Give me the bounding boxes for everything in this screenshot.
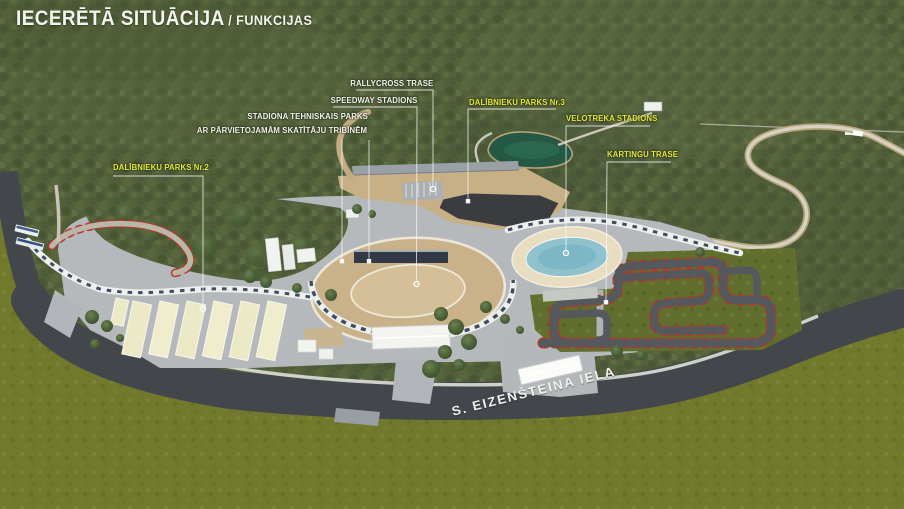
label-stadiona-tehniskais-parks: STADIONA TEHNISKAIS PARKS bbox=[247, 111, 368, 121]
marker-parks3 bbox=[466, 199, 470, 203]
tree bbox=[434, 307, 448, 321]
tree bbox=[453, 359, 465, 371]
tree bbox=[636, 350, 646, 360]
title-sub: / FUNKCIJAS bbox=[228, 12, 312, 28]
label-rallycross-trase: RALLYCROSS TRASE bbox=[350, 78, 433, 88]
marker-karting bbox=[604, 300, 608, 304]
tree bbox=[461, 334, 477, 350]
marker-techpark-b bbox=[367, 259, 371, 263]
tree bbox=[516, 326, 524, 334]
tree bbox=[352, 204, 362, 214]
page-title: IECERĒTĀ SITUĀCIJA/ FUNKCIJAS bbox=[16, 7, 312, 31]
tree bbox=[85, 310, 99, 324]
tree bbox=[438, 345, 452, 359]
small-building bbox=[644, 102, 662, 111]
label-velotreka-stadions: VELOTREKA STADIONS bbox=[566, 113, 657, 123]
tree bbox=[422, 360, 440, 378]
marker-velotreka bbox=[563, 250, 568, 255]
map-scene bbox=[0, 0, 904, 509]
title-main: IECERĒTĀ SITUĀCIJA bbox=[16, 7, 225, 30]
marker-parks2 bbox=[200, 306, 205, 311]
tree bbox=[695, 247, 705, 257]
marker-rallycross bbox=[430, 186, 435, 191]
start-grid bbox=[403, 181, 444, 201]
marker-techpark-a bbox=[340, 259, 344, 263]
small-tent bbox=[298, 340, 316, 352]
tree bbox=[448, 319, 464, 335]
label-dalibnieku-parks-nr2: DALĪBNIEKU PARKS Nr.2 bbox=[113, 162, 209, 172]
tree bbox=[500, 314, 510, 324]
tree bbox=[611, 345, 623, 357]
small-tent bbox=[319, 349, 333, 359]
tree bbox=[480, 301, 492, 313]
tree bbox=[292, 283, 302, 293]
marker-speedway bbox=[414, 281, 419, 286]
tree bbox=[260, 276, 272, 288]
tree bbox=[325, 289, 337, 301]
tree bbox=[101, 320, 113, 332]
tree bbox=[243, 269, 257, 283]
label-kartingu-trase: KARTINGU TRASE bbox=[607, 149, 678, 159]
label-speedway-stadions: SPEEDWAY STADIONS bbox=[330, 95, 417, 105]
label-dalibnieku-parks-nr3: DALĪBNIEKU PARKS Nr.3 bbox=[469, 97, 565, 107]
tree bbox=[90, 339, 100, 349]
label-parvietojamas-tribines: AR PĀRVIETOJAMĀM SKATĪTĀJU TRIBĪNĒM bbox=[197, 125, 367, 135]
tree bbox=[116, 334, 124, 342]
main-hall-building bbox=[372, 325, 451, 350]
site-plan-rendering: IECERĒTĀ SITUĀCIJA/ FUNKCIJAS RALLYCROSS… bbox=[0, 0, 904, 509]
